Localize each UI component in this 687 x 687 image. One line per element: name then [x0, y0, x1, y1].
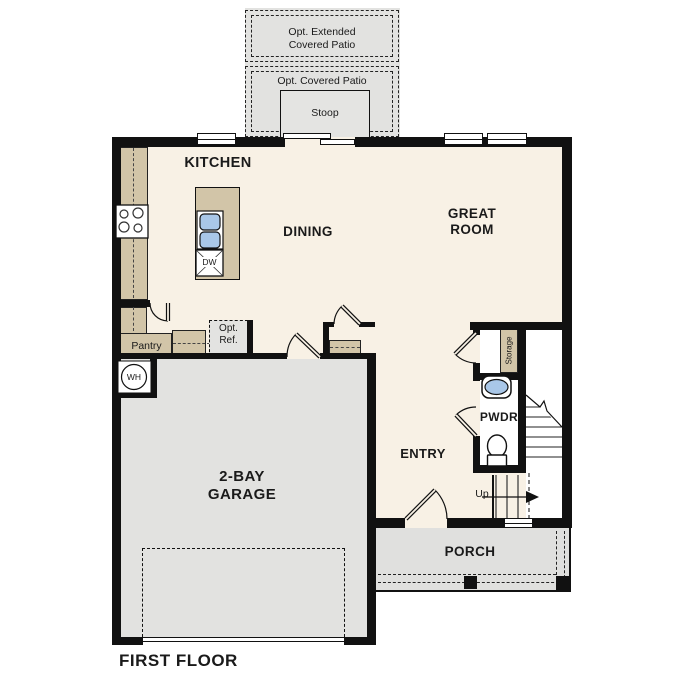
- plan-title: FIRST FLOOR: [119, 651, 249, 671]
- garage-entry-opening: [287, 353, 320, 359]
- extended-patio-label: Opt. Extended Covered Patio: [245, 26, 399, 51]
- stairwell-floor: [526, 330, 562, 518]
- pantry-centerline: [133, 307, 134, 331]
- water-heater-label: WH: [123, 372, 145, 382]
- entry-label: ENTRY: [398, 446, 448, 462]
- pantry-label: Pantry: [122, 340, 171, 353]
- stair-landing-window: [504, 518, 533, 528]
- powder-top-wall: [473, 373, 526, 380]
- porch-post-right: [556, 576, 570, 590]
- great-room-window-2: [487, 133, 527, 145]
- great-room-label: GREAT ROOM: [434, 206, 510, 238]
- storage-jamb-top: [473, 330, 480, 335]
- exterior-wall-left: [112, 137, 121, 645]
- garage-door-dashed-area: [142, 548, 345, 637]
- up-label: Up: [472, 488, 492, 501]
- coat-closet-left-wall: [323, 322, 329, 359]
- powder-label: PWDR: [478, 410, 520, 424]
- garage-bottom-wall-right: [344, 637, 376, 645]
- garage-label: 2-BAY GARAGE: [182, 468, 302, 504]
- coat-closet-jamb-left: [323, 322, 334, 327]
- closet-shelf-dashline: [330, 347, 360, 348]
- front-door-opening: [405, 518, 447, 528]
- kitchen-label: KITCHEN: [180, 155, 256, 172]
- sliding-door-panel-inner: [320, 139, 355, 145]
- dishwasher-label: DW: [198, 257, 221, 267]
- great-room-window-1: [444, 133, 483, 145]
- water-heater-wall-h: [118, 392, 157, 398]
- exterior-wall-right: [562, 137, 572, 528]
- kitchen-counter: [121, 147, 148, 300]
- counter-centerline: [133, 148, 134, 298]
- optional-ref-label: Opt. Ref.: [209, 323, 248, 347]
- kitchen-window: [197, 133, 236, 145]
- pantry-wall: [112, 300, 150, 307]
- coat-closet-jamb-right: [359, 322, 375, 327]
- storage-label-wrap: Storage: [497, 327, 521, 373]
- porch-dashline-3: [556, 531, 557, 575]
- stoop-label: Stoop: [280, 107, 370, 120]
- garage-right-wall: [367, 353, 376, 645]
- covered-patio-label: Opt. Covered Patio: [245, 75, 399, 88]
- porch-post-left: [464, 576, 477, 589]
- exterior-wall-front: [367, 518, 572, 528]
- garage-door: [142, 637, 345, 642]
- porch-dashline-1: [378, 574, 556, 575]
- stair-edge-line: [492, 475, 494, 518]
- garage-bottom-wall-left: [112, 637, 143, 645]
- first-floor-plan: Opt. Extended Covered Patio Opt. Covered…: [0, 0, 687, 687]
- porch-label: PORCH: [440, 544, 500, 560]
- powder-bottom-wall: [473, 465, 526, 473]
- dining-label: DINING: [277, 224, 339, 240]
- storage-label: Storage: [505, 336, 514, 364]
